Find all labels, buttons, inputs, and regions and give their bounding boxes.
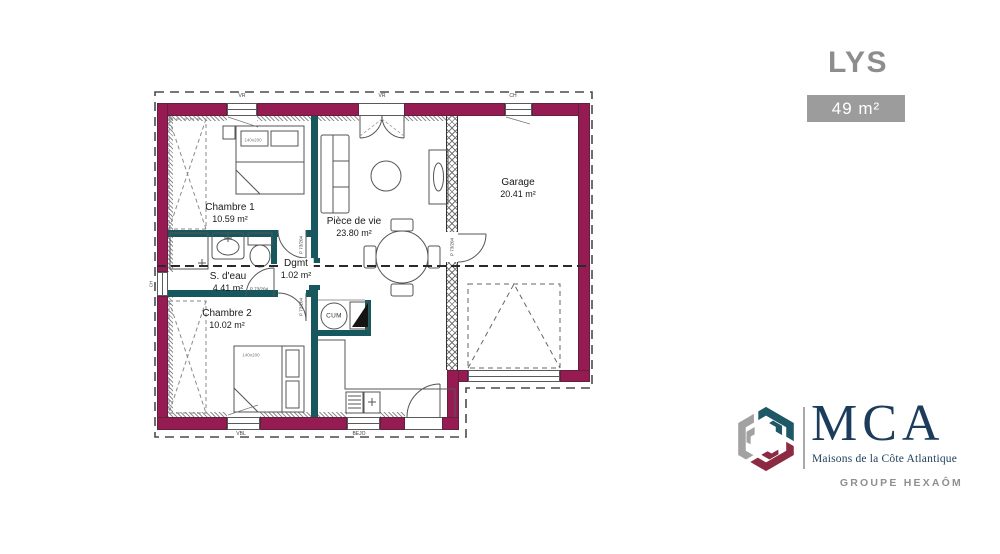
room-area: 1.02 m² — [281, 270, 312, 280]
window-label-bath: CH — [149, 281, 154, 288]
bed-size-label: 140x200 — [244, 138, 261, 143]
wardrobe-chambre1 — [169, 119, 206, 229]
exterior-wall-bottom — [380, 417, 405, 430]
room-area: 10.59 m² — [205, 214, 254, 224]
insulation-hatch — [168, 296, 173, 412]
insulation-hatch — [404, 116, 446, 121]
closet-wall — [365, 300, 371, 336]
room-name: Dgmt — [281, 258, 312, 270]
window-label-bottom-mid: BEJO — [352, 431, 365, 437]
insulation-hatch — [257, 116, 359, 121]
mca-cube-icon — [731, 402, 801, 476]
window-garage — [505, 103, 532, 116]
bed-chambre1 — [223, 126, 304, 194]
window-chambre1 — [227, 103, 257, 116]
window-label-vr: VR — [239, 93, 246, 99]
room-name: Garage — [500, 177, 536, 189]
kitchen-door-opening — [405, 417, 442, 430]
garage-sectional-door — [468, 284, 560, 368]
insulation-hatch — [168, 116, 227, 121]
room-name: S. d'eau — [210, 271, 246, 283]
garage-front-wall — [560, 370, 590, 382]
exterior-wall-bottom — [157, 417, 227, 430]
room-name: Chambre 2 — [202, 308, 251, 320]
door-kitchen-exterior — [407, 384, 440, 417]
exterior-wall-left — [157, 103, 168, 272]
exterior-wall-bottom — [442, 417, 459, 430]
room-area: 23.80 m² — [327, 228, 381, 238]
room-name: Chambre 1 — [205, 202, 254, 214]
closet-wall — [311, 330, 371, 336]
window-label-garage: CH — [509, 93, 516, 99]
window-label-vr: VR — [379, 93, 386, 99]
interior-wall — [306, 290, 318, 297]
door-label: P 73/204 — [299, 298, 304, 316]
room-area: 10.02 m² — [202, 320, 251, 330]
garage-door-opening — [468, 370, 560, 382]
brand-tagline: Maisons de la Côte Atlantique — [812, 453, 964, 465]
sofa — [321, 135, 349, 213]
interior-wall — [168, 230, 278, 237]
toilet — [248, 233, 272, 267]
window-chambre2 — [227, 417, 260, 430]
water-heater-label: CUM — [326, 313, 342, 320]
door-label: P 73/204 — [299, 236, 304, 254]
kitchen-counter — [318, 340, 455, 417]
exterior-wall-top — [404, 103, 505, 116]
door-garage — [458, 234, 486, 262]
exterior-wall-right — [578, 103, 590, 382]
garage-partition-wall — [446, 262, 458, 370]
insulation-hatch — [380, 412, 405, 417]
exterior-wall-left — [157, 296, 168, 430]
window-bathroom — [157, 272, 168, 296]
room-area: 4.41 m² — [210, 283, 246, 293]
insulation-hatch — [168, 116, 173, 272]
wardrobe-chambre2 — [169, 301, 206, 413]
room-label-piece-de-vie: Pièce de vie 23.80 m² — [327, 216, 381, 238]
room-label-chambre2: Chambre 2 10.02 m² — [202, 308, 251, 330]
floor-plan: Chambre 1 10.59 m² Pièce de vie 23.80 m²… — [0, 0, 660, 554]
door-label: P 73/204 — [250, 287, 268, 292]
brand-block: MCA Maisons de la Côte Atlantique GROUPE… — [725, 394, 975, 504]
interior-wall — [311, 285, 318, 417]
brand-divider — [803, 407, 805, 469]
roof-overhang-outline — [155, 92, 592, 437]
room-label-chambre1: Chambre 1 10.59 m² — [205, 202, 254, 224]
room-label-s-deau: S. d'eau 4.41 m² — [210, 271, 246, 293]
interior-wall — [271, 237, 277, 264]
garage-partition-wall — [446, 116, 458, 232]
shower — [170, 233, 208, 269]
entrance-double-door — [360, 116, 404, 138]
area-badge: 49 m² — [807, 95, 905, 122]
room-label-dgmt: Dgmt 1.02 m² — [279, 258, 314, 280]
floor-plan-page: Chambre 1 10.59 m² Pièce de vie 23.80 m²… — [0, 0, 1000, 554]
exterior-wall-top — [257, 103, 359, 116]
brand-name: MCA — [811, 398, 944, 450]
exterior-wall-bottom — [260, 417, 347, 430]
door-label: P 73/204 — [450, 238, 455, 256]
window-label-bottom-left: VBL — [236, 431, 245, 437]
room-name: Pièce de vie — [327, 216, 381, 228]
interior-wall — [311, 116, 318, 263]
brand-group: GROUPE HEXAÔM — [812, 477, 963, 489]
model-name: LYS — [790, 46, 926, 80]
window-kitchen — [347, 417, 380, 430]
interior-wall — [306, 230, 318, 237]
room-label-garage: Garage 20.41 m² — [500, 177, 536, 199]
entrance-opening — [359, 103, 404, 116]
coffee-table — [371, 161, 401, 191]
bed-size-label: 140x200 — [242, 353, 259, 358]
insulation-hatch — [260, 412, 347, 417]
insulation-hatch — [168, 412, 227, 417]
room-area: 20.41 m² — [500, 189, 536, 199]
